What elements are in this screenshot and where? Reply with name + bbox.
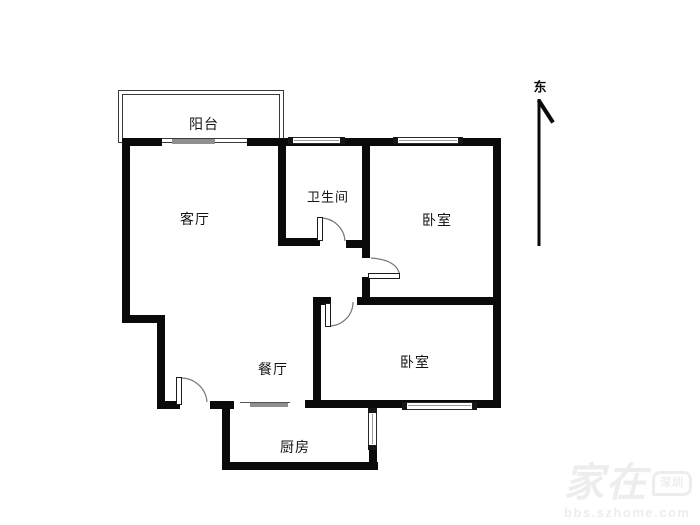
room-label-kitchen: 厨房 [280, 437, 310, 457]
floor-plan: 阳台 客厅 卫生间 卧室 卧室 餐厅 厨房 东 家在 深圳 bbs.szhome… [0, 0, 700, 525]
plan-overlay [0, 0, 700, 525]
room-label-balcony: 阳台 [189, 114, 219, 134]
room-label-dining-room: 餐厅 [258, 359, 288, 379]
door-leaf-entry [176, 377, 182, 405]
door-leaf-bathroom [317, 217, 323, 241]
door-arc-bedroom-south [329, 302, 353, 326]
door-arc-bathroom [321, 218, 346, 241]
door-arc-entry [181, 378, 207, 402]
compass-east-label: 东 [533, 77, 546, 96]
door-leaf-bedroom-north [368, 273, 400, 279]
room-label-bedroom-south: 卧室 [400, 352, 430, 372]
room-label-bathroom: 卫生间 [307, 187, 349, 206]
room-label-bedroom-north: 卧室 [422, 210, 452, 230]
door-leaf-bedroom-south [325, 303, 331, 327]
room-label-living-room: 客厅 [180, 209, 210, 229]
compass-arrow-barb [539, 100, 554, 123]
